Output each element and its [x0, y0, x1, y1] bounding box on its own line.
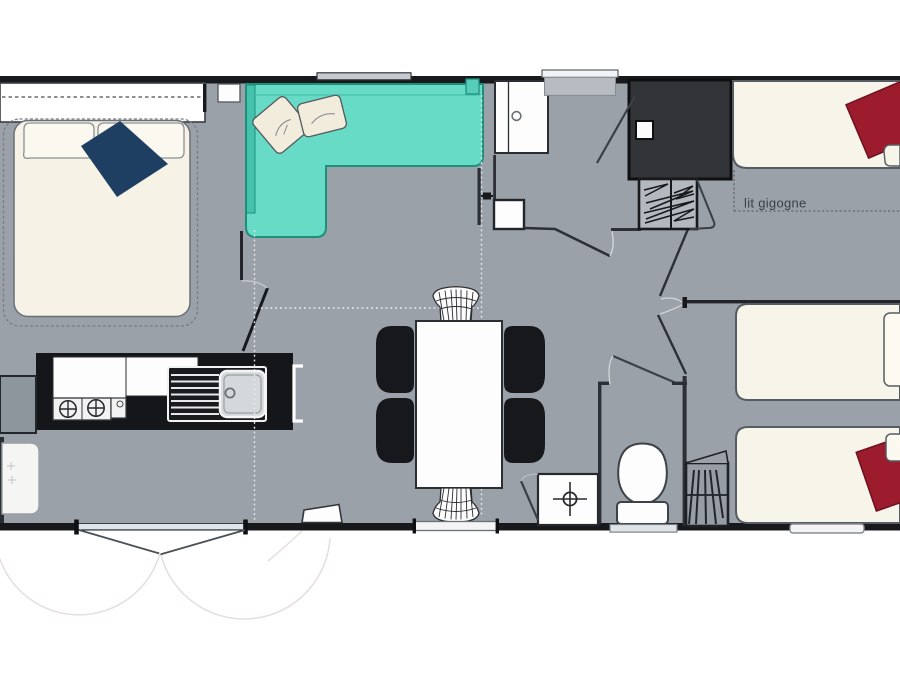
svg-text:lit gigogne: lit gigogne — [744, 196, 807, 211]
